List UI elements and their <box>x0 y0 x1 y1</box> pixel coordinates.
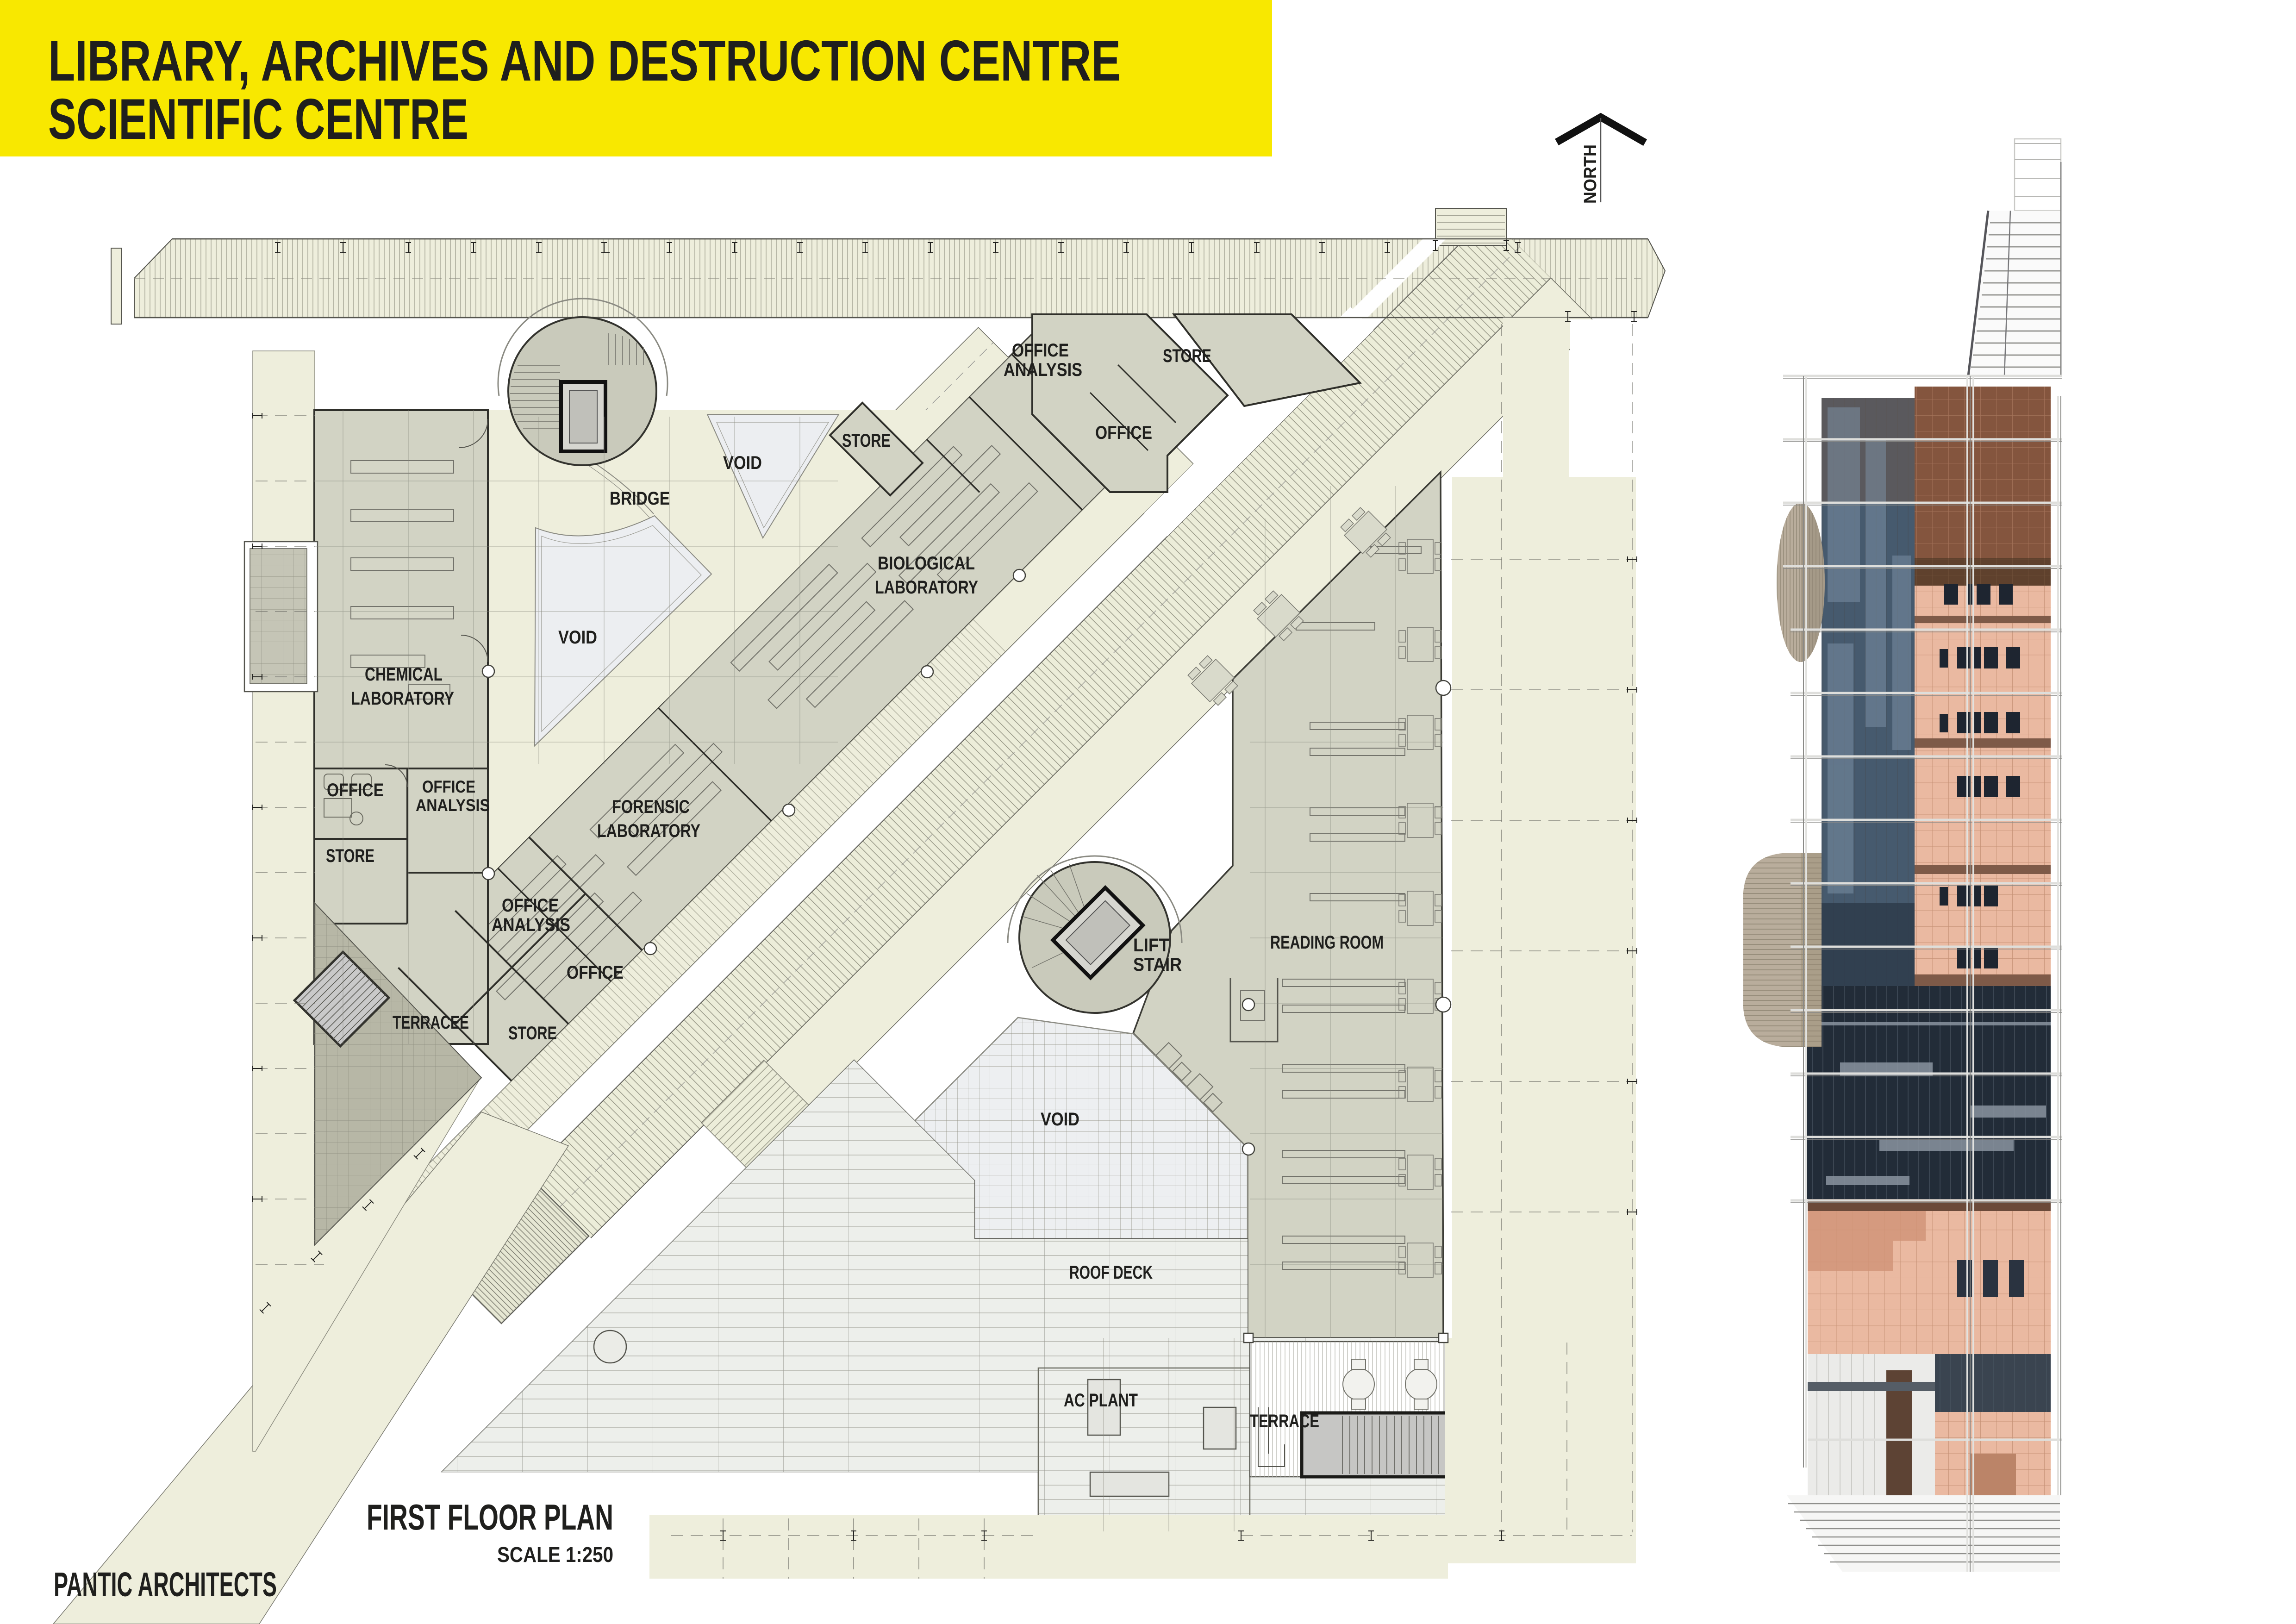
svg-text:STORE: STORE <box>508 1023 557 1043</box>
svg-text:BIOLOGICAL: BIOLOGICAL <box>878 553 975 574</box>
svg-text:VOID: VOID <box>558 627 597 648</box>
svg-text:OFFICE: OFFICE <box>502 895 559 916</box>
svg-text:OFFICE: OFFICE <box>567 962 624 983</box>
svg-text:READING ROOM: READING ROOM <box>1270 932 1384 953</box>
svg-text:AC PLANT: AC PLANT <box>1064 1390 1138 1411</box>
svg-text:LIFT: LIFT <box>1133 935 1169 956</box>
svg-text:LABORATORY: LABORATORY <box>351 688 454 709</box>
svg-text:LABORATORY: LABORATORY <box>597 821 700 841</box>
svg-text:CHEMICAL: CHEMICAL <box>365 664 443 685</box>
svg-text:OFFICE: OFFICE <box>1095 423 1152 443</box>
svg-text:FORENSIC: FORENSIC <box>612 797 690 817</box>
svg-text:STORE: STORE <box>326 846 374 866</box>
svg-text:ANALYSIS: ANALYSIS <box>492 915 570 935</box>
svg-text:STORE: STORE <box>842 431 891 451</box>
svg-text:ANALYSIS: ANALYSIS <box>416 796 490 815</box>
svg-text:TERRACE: TERRACE <box>1250 1411 1319 1431</box>
svg-text:STAIR: STAIR <box>1133 955 1182 975</box>
svg-text:LIBRARY, ARCHIVES AND DESTRUCT: LIBRARY, ARCHIVES AND DESTRUCTION CENTRE <box>48 29 1121 93</box>
svg-text:VOID: VOID <box>1041 1109 1079 1130</box>
svg-text:FIRST FLOOR PLAN: FIRST FLOOR PLAN <box>367 1497 613 1537</box>
svg-text:OFFICE: OFFICE <box>422 777 475 796</box>
svg-text:STORE: STORE <box>1163 346 1211 366</box>
svg-text:VOID: VOID <box>723 453 762 473</box>
svg-text:LABORATORY: LABORATORY <box>875 577 978 598</box>
svg-text:SCALE 1:250: SCALE 1:250 <box>497 1543 613 1567</box>
svg-text:NORTH: NORTH <box>1581 144 1600 204</box>
svg-text:TERRACEE: TERRACEE <box>393 1012 469 1033</box>
svg-text:PANTIC ARCHITECTS: PANTIC ARCHITECTS <box>54 1565 277 1604</box>
svg-text:ANALYSIS: ANALYSIS <box>1004 360 1082 380</box>
svg-text:ROOF DECK: ROOF DECK <box>1069 1262 1153 1283</box>
svg-text:OFFICE: OFFICE <box>1012 340 1069 361</box>
svg-text:SCIENTIFIC CENTRE: SCIENTIFIC CENTRE <box>48 87 468 151</box>
svg-text:OFFICE: OFFICE <box>327 780 384 800</box>
svg-text:BRIDGE: BRIDGE <box>610 488 670 509</box>
